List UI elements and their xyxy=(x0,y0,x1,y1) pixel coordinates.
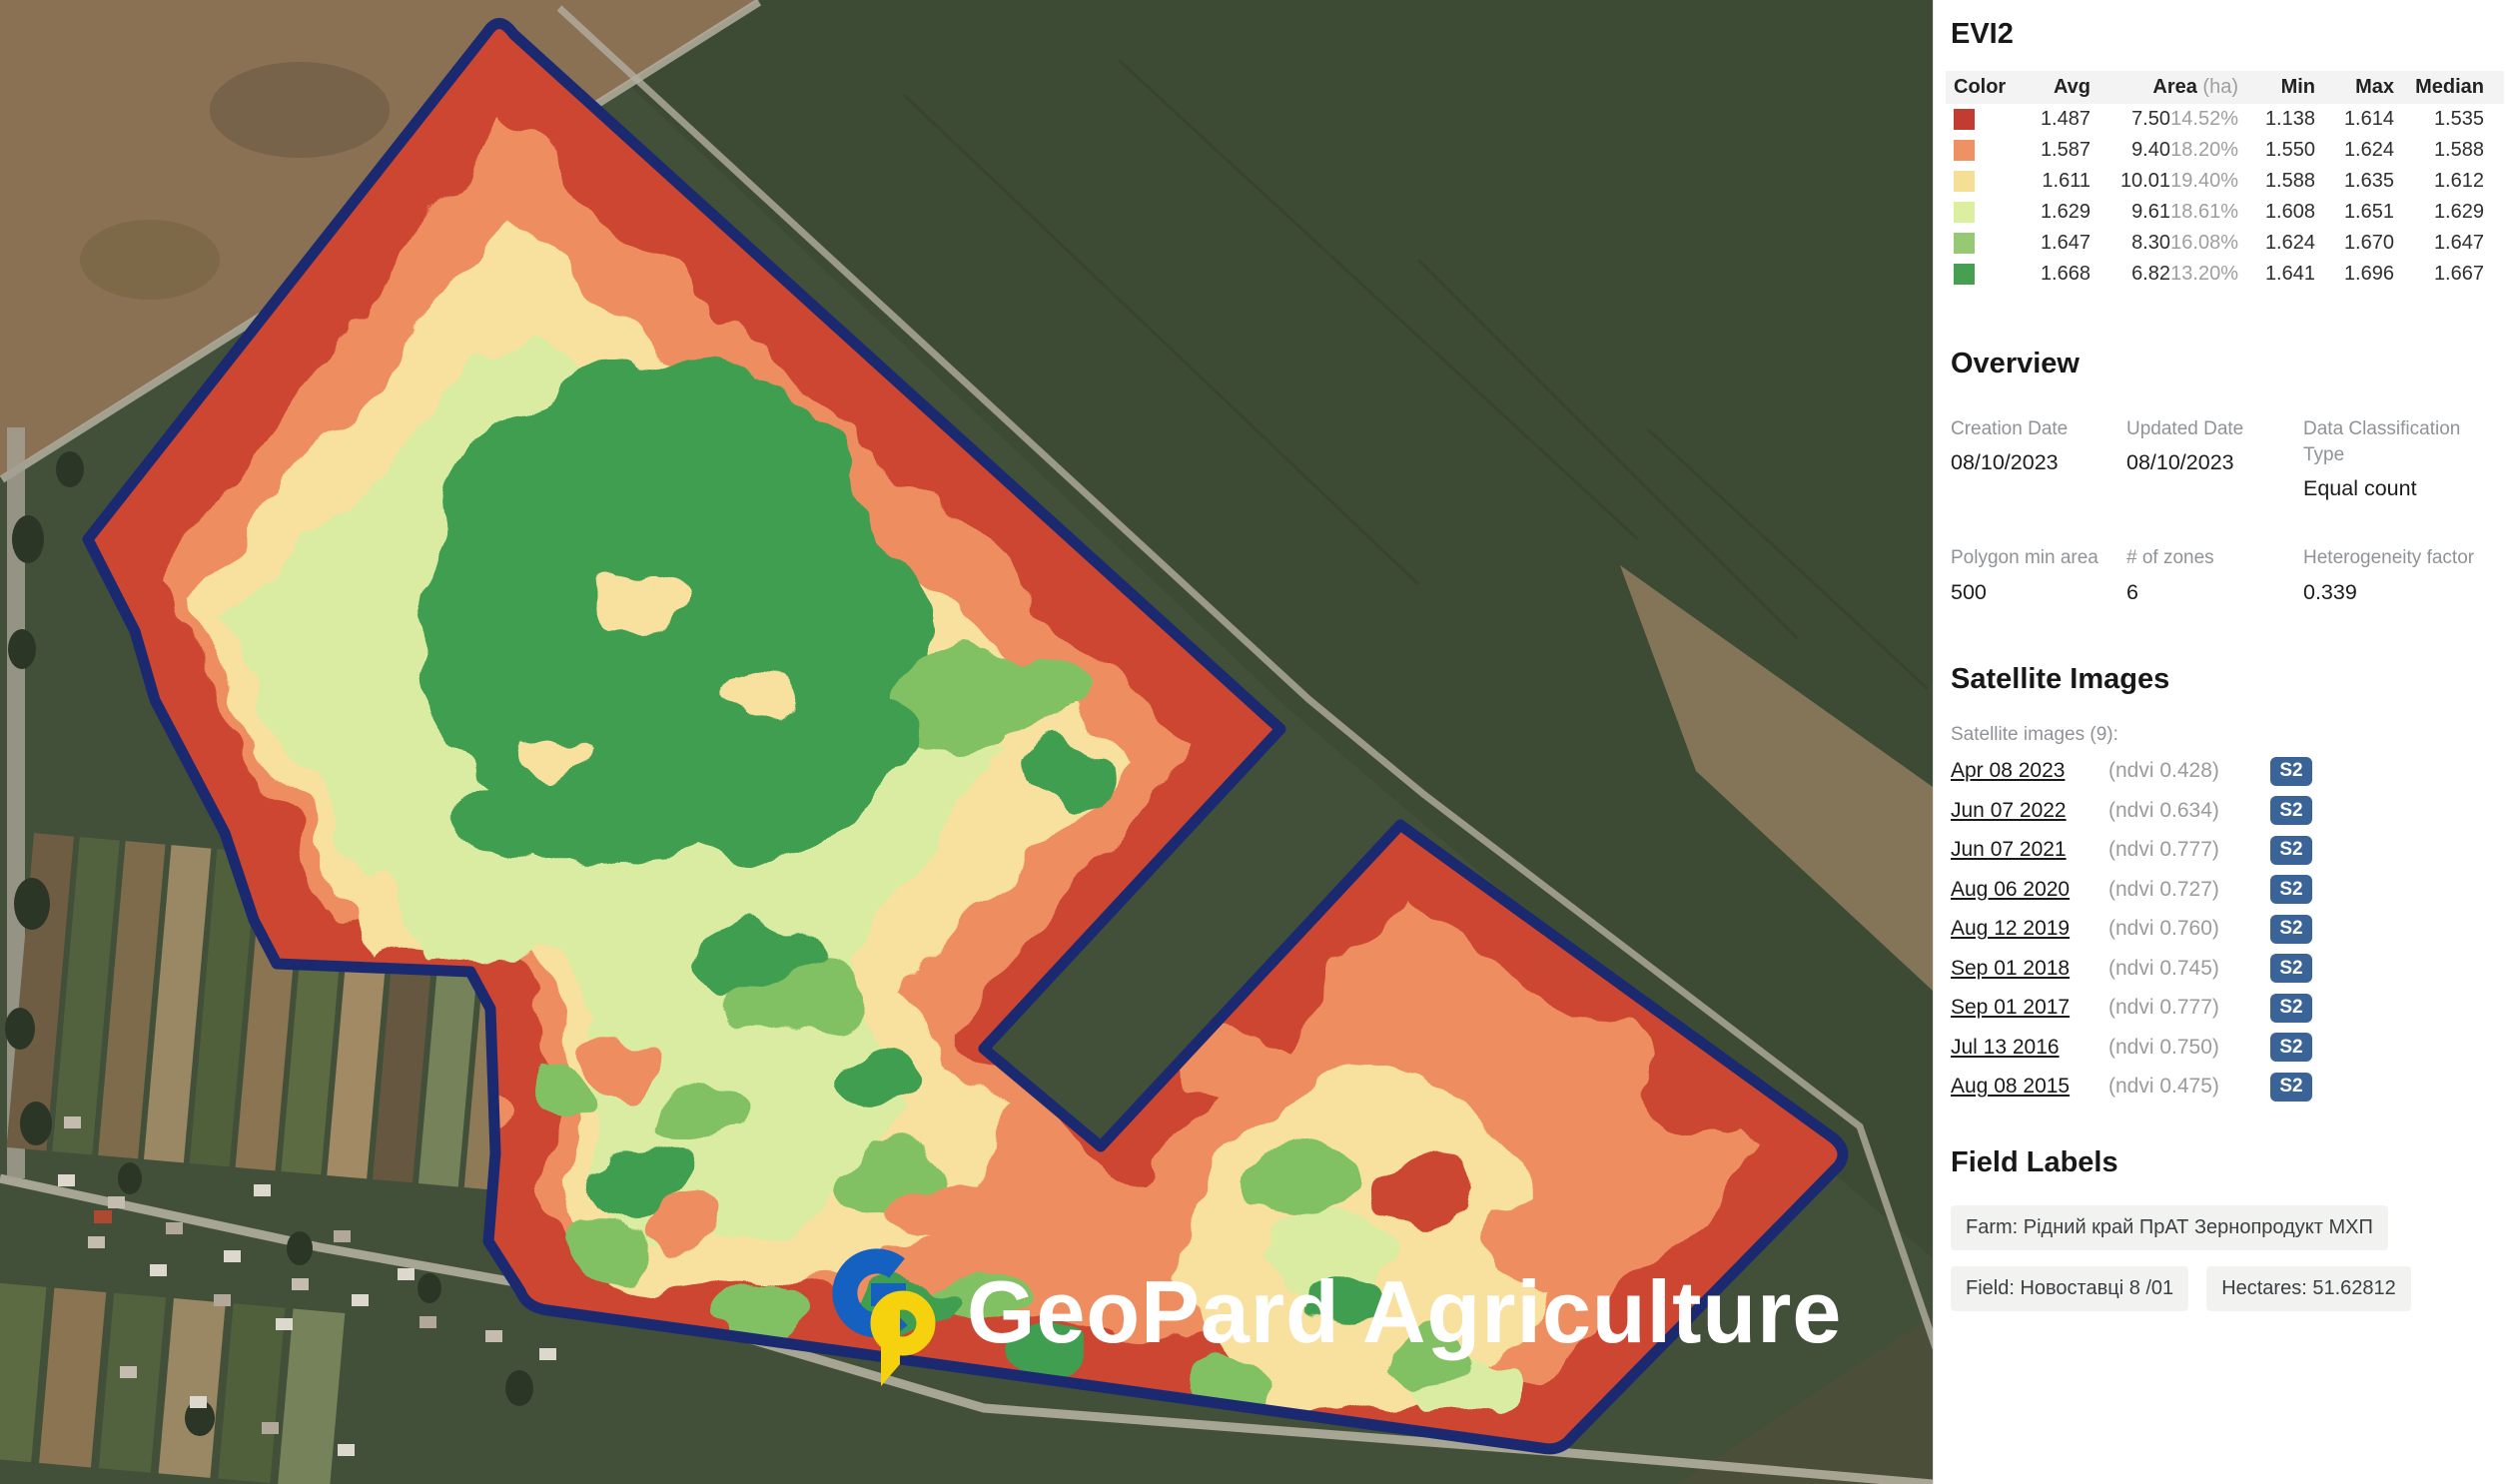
s2-badge[interactable]: S2 xyxy=(2270,757,2312,786)
median-value: 1.629 xyxy=(2394,197,2504,228)
satellite-images-title: Satellite Images xyxy=(1951,663,2507,696)
satellite-image-item: Sep 01 2017(ndvi 0.777)S2 xyxy=(1951,989,2507,1029)
avg-value: 1.647 xyxy=(1998,228,2090,259)
details-sidebar: EVI2 Color Avg Area (ha) Min Max Median … xyxy=(1933,0,2507,1484)
overview-field-value: Equal count xyxy=(2303,476,2490,501)
max-value: 1.651 xyxy=(2315,197,2394,228)
overview-field-value: 0.339 xyxy=(2303,580,2490,605)
median-value: 1.612 xyxy=(2394,166,2504,197)
col-area-unit: (ha) xyxy=(2202,76,2238,98)
min-value: 1.550 xyxy=(2238,135,2315,166)
s2-badge[interactable]: S2 xyxy=(2270,954,2312,983)
satellite-date-link[interactable]: Sep 01 2017 xyxy=(1951,996,2100,1020)
satellite-image-item: Aug 08 2015(ndvi 0.475)S2 xyxy=(1951,1068,2507,1108)
overview-grid: Creation Date08/10/2023Updated Date08/10… xyxy=(1951,416,2490,605)
max-value: 1.696 xyxy=(2315,259,2394,290)
overview-field-label: Updated Date xyxy=(2126,416,2303,442)
s2-badge[interactable]: S2 xyxy=(2270,1033,2312,1062)
satellite-image-item: Sep 01 2018(ndvi 0.745)S2 xyxy=(1951,949,2507,989)
median-value: 1.588 xyxy=(2394,135,2504,166)
area-percent: 14.52% xyxy=(2170,108,2238,131)
s2-badge[interactable]: S2 xyxy=(2270,915,2312,944)
field-labels-title: Field Labels xyxy=(1951,1146,2507,1179)
max-value: 1.670 xyxy=(2315,228,2394,259)
evi2-row: 1.6686.8213.20%1.6411.6961.667 xyxy=(1946,259,2504,290)
overview-field-label: Data Classification Type xyxy=(2303,416,2490,468)
area-value: 6.82 xyxy=(2090,263,2170,286)
overview-field: Creation Date08/10/2023 xyxy=(1951,416,2126,501)
area-value: 9.40 xyxy=(2090,139,2170,162)
hectares-chip: Hectares: 51.62812 xyxy=(2206,1266,2411,1311)
min-value: 1.624 xyxy=(2238,228,2315,259)
overview-field-value: 08/10/2023 xyxy=(1951,450,2126,475)
min-value: 1.641 xyxy=(2238,259,2315,290)
avg-value: 1.587 xyxy=(1998,135,2090,166)
median-value: 1.647 xyxy=(2394,228,2504,259)
overview-field: Updated Date08/10/2023 xyxy=(2126,416,2303,501)
evi2-row: 1.4877.5014.52%1.1381.6141.535 xyxy=(1946,104,2504,135)
zone-color-swatch xyxy=(1954,264,1975,285)
satellite-image-item: Jun 07 2022(ndvi 0.634)S2 xyxy=(1951,791,2507,831)
area-value: 9.61 xyxy=(2090,201,2170,224)
satellite-map xyxy=(0,0,1933,1484)
satellite-image-item: Jul 13 2016(ndvi 0.750)S2 xyxy=(1951,1028,2507,1068)
min-value: 1.608 xyxy=(2238,197,2315,228)
col-area: Area (ha) xyxy=(2090,71,2238,104)
s2-badge[interactable]: S2 xyxy=(2270,836,2312,865)
overview-field-value: 6 xyxy=(2126,580,2303,605)
area-percent: 13.20% xyxy=(2170,263,2238,286)
area-percent: 16.08% xyxy=(2170,232,2238,255)
avg-value: 1.629 xyxy=(1998,197,2090,228)
avg-value: 1.668 xyxy=(1998,259,2090,290)
satellite-date-link[interactable]: Apr 08 2023 xyxy=(1951,759,2100,783)
min-value: 1.138 xyxy=(2238,104,2315,135)
satellite-ndvi-value: (ndvi 0.634) xyxy=(2108,799,2270,823)
evi2-row: 1.6478.3016.08%1.6241.6701.647 xyxy=(1946,228,2504,259)
zone-color-swatch xyxy=(1954,233,1975,254)
s2-badge[interactable]: S2 xyxy=(2270,994,2312,1023)
overview-field: # of zones6 xyxy=(2126,545,2303,604)
evi2-table-body: 1.4877.5014.52%1.1381.6141.5351.5879.401… xyxy=(1946,104,2504,290)
zone-color-swatch xyxy=(1954,171,1975,192)
satellite-date-link[interactable]: Jun 07 2022 xyxy=(1951,799,2100,823)
zone-color-swatch xyxy=(1954,109,1975,130)
col-color: Color xyxy=(1946,71,1998,104)
median-value: 1.667 xyxy=(2394,259,2504,290)
col-median: Median xyxy=(2394,71,2504,104)
map-canvas[interactable]: GeoPard Agriculture xyxy=(0,0,1933,1484)
satellite-ndvi-value: (ndvi 0.777) xyxy=(2108,838,2270,862)
zone-color-swatch xyxy=(1954,202,1975,223)
area-value: 8.30 xyxy=(2090,232,2170,255)
max-value: 1.624 xyxy=(2315,135,2394,166)
overview-field-label: Heterogeneity factor xyxy=(2303,545,2490,571)
overview-field-value: 500 xyxy=(1951,580,2126,605)
farm-chip: Farm: Рідний край ПрАТ Зернопродукт МХП xyxy=(1951,1205,2388,1250)
evi2-title: EVI2 xyxy=(1951,18,2507,51)
overview-field-label: Polygon min area xyxy=(1951,545,2126,571)
area-value: 10.01 xyxy=(2090,170,2170,193)
satellite-image-list: Apr 08 2023(ndvi 0.428)S2Jun 07 2022(ndv… xyxy=(1951,752,2507,1108)
satellite-image-item: Apr 08 2023(ndvi 0.428)S2 xyxy=(1951,752,2507,792)
satellite-image-item: Aug 12 2019(ndvi 0.760)S2 xyxy=(1951,910,2507,950)
area-percent: 18.61% xyxy=(2170,201,2238,224)
satellite-image-item: Jun 07 2021(ndvi 0.777)S2 xyxy=(1951,831,2507,871)
evi2-table: Color Avg Area (ha) Min Max Median 1.487… xyxy=(1946,71,2504,290)
satellite-date-link[interactable]: Aug 12 2019 xyxy=(1951,917,2100,941)
overview-field-label: # of zones xyxy=(2126,545,2303,571)
area-percent: 18.20% xyxy=(2170,139,2238,162)
geopard-app: GeoPard Agriculture EVI2 Color Avg Area … xyxy=(0,0,2507,1484)
satellite-date-link[interactable]: Aug 06 2020 xyxy=(1951,878,2100,902)
col-min: Min xyxy=(2238,71,2315,104)
satellite-ndvi-value: (ndvi 0.777) xyxy=(2108,996,2270,1020)
col-max: Max xyxy=(2315,71,2394,104)
s2-badge[interactable]: S2 xyxy=(2270,1073,2312,1102)
max-value: 1.635 xyxy=(2315,166,2394,197)
overview-field: Heterogeneity factor0.339 xyxy=(2303,545,2490,604)
satellite-image-item: Aug 06 2020(ndvi 0.727)S2 xyxy=(1951,870,2507,910)
evi2-row: 1.6299.6118.61%1.6081.6511.629 xyxy=(1946,197,2504,228)
satellite-ndvi-value: (ndvi 0.750) xyxy=(2108,1036,2270,1060)
overview-field-label: Creation Date xyxy=(1951,416,2126,442)
overview-field: Data Classification TypeEqual count xyxy=(2303,416,2490,501)
evi2-header-row: Color Avg Area (ha) Min Max Median xyxy=(1946,71,2504,104)
satellite-date-link[interactable]: Jun 07 2021 xyxy=(1951,838,2100,862)
col-avg: Avg xyxy=(1998,71,2090,104)
satellite-ndvi-value: (ndvi 0.475) xyxy=(2108,1075,2270,1099)
satellite-date-link[interactable]: Sep 01 2018 xyxy=(1951,957,2100,981)
avg-value: 1.611 xyxy=(1998,166,2090,197)
area-value: 7.50 xyxy=(2090,108,2170,131)
s2-badge[interactable]: S2 xyxy=(2270,796,2312,825)
satellite-count-label: Satellite images (9): xyxy=(1951,724,2507,746)
area-percent: 19.40% xyxy=(2170,170,2238,193)
zone-color-swatch xyxy=(1954,140,1975,161)
satellite-ndvi-value: (ndvi 0.745) xyxy=(2108,957,2270,981)
field-chip: Field: Новоставці 8 /01 xyxy=(1951,1266,2188,1311)
overview-field: Polygon min area500 xyxy=(1951,545,2126,604)
avg-value: 1.487 xyxy=(1998,104,2090,135)
field-labels-chips: Farm: Рідний край ПрАТ Зернопродукт МХП … xyxy=(1951,1205,2490,1311)
satellite-date-link[interactable]: Aug 08 2015 xyxy=(1951,1075,2100,1099)
median-value: 1.535 xyxy=(2394,104,2504,135)
satellite-date-link[interactable]: Jul 13 2016 xyxy=(1951,1036,2100,1060)
evi2-row: 1.61110.0119.40%1.5881.6351.612 xyxy=(1946,166,2504,197)
overview-title: Overview xyxy=(1951,348,2507,380)
satellite-ndvi-value: (ndvi 0.760) xyxy=(2108,917,2270,941)
satellite-ndvi-value: (ndvi 0.727) xyxy=(2108,878,2270,902)
overview-field-value: 08/10/2023 xyxy=(2126,450,2303,475)
evi2-row: 1.5879.4018.20%1.5501.6241.588 xyxy=(1946,135,2504,166)
min-value: 1.588 xyxy=(2238,166,2315,197)
s2-badge[interactable]: S2 xyxy=(2270,875,2312,904)
satellite-ndvi-value: (ndvi 0.428) xyxy=(2108,759,2270,783)
max-value: 1.614 xyxy=(2315,104,2394,135)
